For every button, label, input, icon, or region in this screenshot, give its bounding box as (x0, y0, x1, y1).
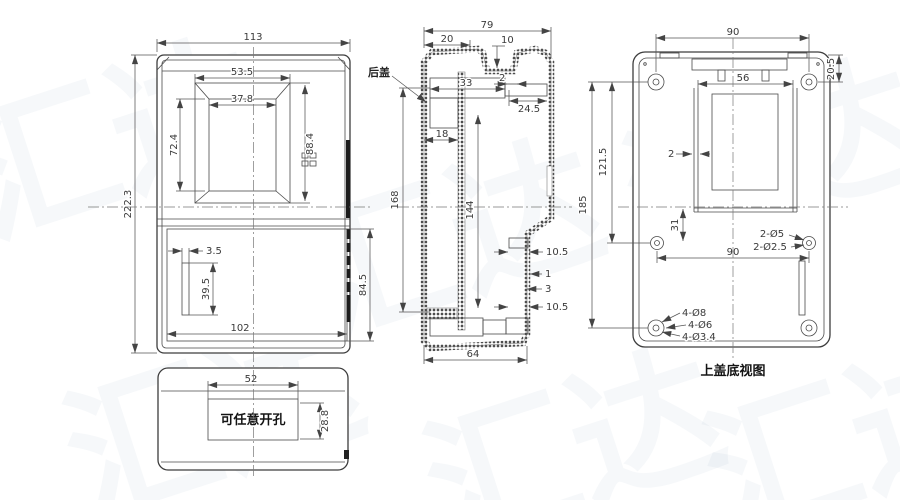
dim-slot-height: 39.5 (201, 278, 212, 300)
dim-cover-span-top: 90 (727, 27, 740, 38)
dim-cover-overall-height: 185 (578, 195, 589, 214)
dim-side-right-seg: 24.5 (518, 104, 540, 115)
dim-cover-step: 31 (670, 219, 681, 232)
dim-side-overall-width: 79 (481, 20, 494, 31)
dim-side-block-width: 33 (460, 78, 473, 89)
dim-side-thk1: 1 (545, 269, 551, 280)
dim-cover-channel-width: 56 (737, 73, 750, 84)
dim-window-outer-width: 53.5 (231, 67, 253, 78)
dim-side-gap: 2 (499, 73, 505, 84)
dim-cover-rail: 2 (668, 149, 674, 160)
dim-panel-height: 84.5 (358, 274, 369, 296)
dim-front-height: 222.3 (123, 190, 134, 219)
dim-side-wall-step: 18 (436, 129, 449, 140)
dim-side-cavity-height: 144 (465, 200, 476, 219)
dim-side-thk2: 3 (545, 284, 551, 295)
dim-cover-mid-height: 121.5 (598, 148, 609, 177)
front-view: 113 53.5 37.8 72.4 88.4 222.3 (123, 32, 374, 353)
cover-bottom-view: 90 20.5 56 2 31 90 2-Ø5 (578, 27, 843, 379)
back-cover-label: 后盖 (368, 65, 390, 79)
drawing-canvas: 汇达 汇达 汇达 汇达 汇达 汇达 (0, 0, 900, 500)
label-holes-4d8: 4-Ø8 (682, 307, 706, 319)
dim-side-rib-bot: 10.5 (546, 302, 568, 313)
dim-slot-offset: 3.5 (206, 246, 222, 257)
dim-front-width: 113 (243, 32, 262, 43)
dim-side-base-width: 64 (467, 349, 480, 360)
side-section-walls (424, 49, 552, 348)
dim-panel-width: 102 (230, 323, 249, 334)
dim-window-outer-height: 88.4 (305, 133, 316, 155)
dim-side-rib-top: 10.5 (546, 247, 568, 258)
cover-outline (633, 52, 830, 347)
dim-knockout-width: 52 (245, 374, 258, 385)
dim-side-left-seg: 20 (441, 34, 454, 45)
cover-view-caption: 上盖底视图 (700, 363, 765, 379)
dim-knockout-height: 28.8 (320, 410, 331, 432)
label-holes-4d6: 4-Ø6 (688, 319, 712, 331)
side-section-view: 79 20 10 33 2 24.5 18 (368, 20, 568, 364)
label-holes-2d5: 2-Ø5 (760, 228, 784, 240)
dim-cover-corner: 20.5 (826, 58, 837, 80)
dim-window-inner-height: 72.4 (169, 134, 180, 156)
dim-window-inner-width: 37.8 (231, 94, 253, 105)
knockout-note: 可任意开孔 (220, 412, 285, 428)
side-view-dimensions: 79 20 10 33 2 24.5 18 (368, 20, 568, 364)
dim-side-recess: 10 (501, 35, 514, 46)
label-holes-4d34: 4-Ø3.4 (682, 331, 716, 343)
technical-drawing: 113 53.5 37.8 72.4 88.4 222.3 (0, 0, 900, 500)
label-holes-2d25: 2-Ø2.5 (753, 241, 787, 253)
